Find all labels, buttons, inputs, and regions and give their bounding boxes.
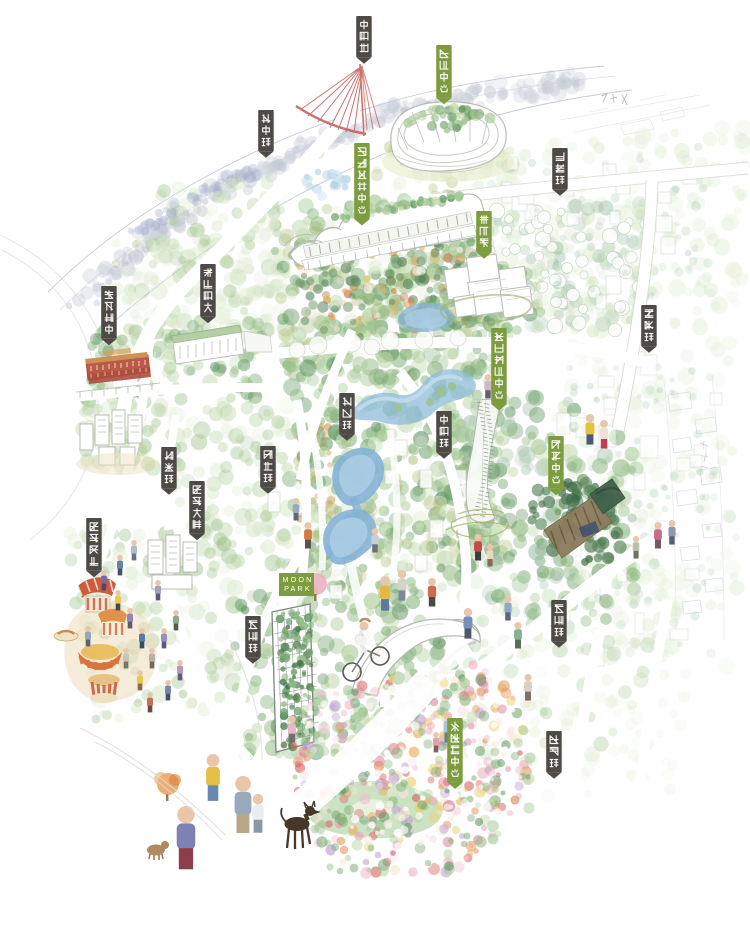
svg-text:MOON: MOON [282,575,313,584]
svg-text:PARK: PARK [284,584,312,593]
